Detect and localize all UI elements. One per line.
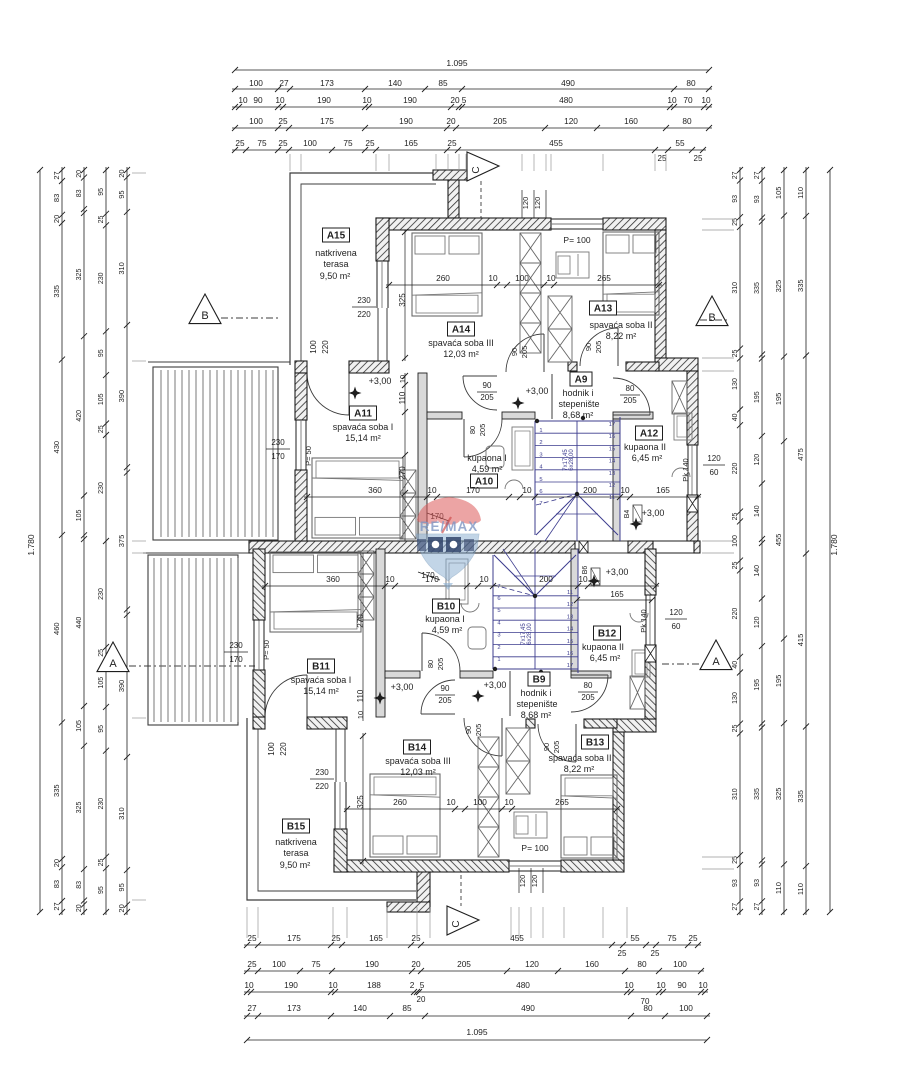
svg-text:25: 25 [365,138,375,148]
svg-text:188: 188 [367,980,381,990]
svg-text:10: 10 [328,980,338,990]
svg-text:83: 83 [76,189,83,197]
svg-text:25: 25 [447,138,457,148]
svg-text:80: 80 [637,959,647,969]
svg-text:8,68 m²: 8,68 m² [521,710,552,720]
svg-text:175: 175 [320,116,334,126]
svg-text:20: 20 [117,904,126,912]
svg-text:335: 335 [52,784,61,797]
svg-text:terasa: terasa [283,848,308,858]
svg-text:P= 100: P= 100 [521,843,548,853]
svg-text:455: 455 [510,933,524,943]
svg-text:100: 100 [679,1003,693,1013]
svg-text:P= 50: P= 50 [262,640,271,660]
svg-text:1.095: 1.095 [466,1027,488,1037]
svg-text:10: 10 [446,797,456,807]
svg-text:90: 90 [441,684,450,693]
svg-text:8,22 m²: 8,22 m² [606,331,637,341]
svg-text:10: 10 [698,980,708,990]
svg-text:420: 420 [76,410,83,422]
svg-text:130: 130 [732,378,739,390]
svg-text:190: 190 [399,116,413,126]
svg-text:173: 173 [287,1003,301,1013]
svg-text:+3,00: +3,00 [526,386,549,396]
svg-text:12: 12 [567,602,573,608]
svg-text:3: 3 [539,452,542,458]
svg-text:25: 25 [98,425,105,433]
svg-text:C: C [471,166,482,173]
svg-text:205: 205 [594,341,603,354]
svg-text:130: 130 [732,692,739,704]
svg-text:105: 105 [774,187,783,200]
svg-text:8,22 m²: 8,22 m² [564,764,595,774]
svg-text:190: 190 [403,95,417,105]
svg-text:205: 205 [493,116,507,126]
svg-text:100: 100 [249,116,263,126]
svg-text:205: 205 [474,724,483,737]
svg-text:6,45 m²: 6,45 m² [632,453,663,463]
svg-text:200: 200 [539,574,553,584]
svg-text:10: 10 [275,95,285,105]
svg-text:20: 20 [417,995,426,1004]
svg-text:27: 27 [732,903,739,911]
svg-text:6: 6 [539,489,542,495]
svg-text:165: 165 [656,485,670,495]
svg-text:90: 90 [510,348,519,356]
svg-text:220: 220 [732,608,739,620]
svg-text:5: 5 [420,980,425,990]
svg-text:83: 83 [76,881,83,889]
svg-text:170: 170 [229,655,243,664]
svg-text:83: 83 [52,194,61,202]
svg-text:100: 100 [249,78,263,88]
svg-text:25: 25 [618,949,627,958]
svg-text:173: 173 [320,78,334,88]
svg-text:6,45 m²: 6,45 m² [590,653,621,663]
svg-text:10: 10 [701,95,711,105]
svg-text:85: 85 [438,78,448,88]
svg-text:75: 75 [667,933,677,943]
svg-text:80: 80 [426,660,435,668]
svg-text:10: 10 [238,95,248,105]
svg-text:40: 40 [732,661,739,669]
svg-text:terasa: terasa [323,259,348,269]
svg-text:hodnik i: hodnik i [520,688,551,698]
svg-text:2: 2 [497,645,500,651]
svg-text:100: 100 [303,138,317,148]
svg-text:25: 25 [732,725,739,733]
svg-text:310: 310 [117,807,126,820]
svg-text:9,50 m²: 9,50 m² [320,271,351,281]
svg-text:230: 230 [315,768,329,777]
svg-text:120: 120 [525,959,539,969]
svg-text:120: 120 [754,454,761,466]
svg-text:190: 190 [317,95,331,105]
svg-text:13: 13 [609,471,615,477]
svg-text:220: 220 [279,742,288,756]
svg-text:220: 220 [357,310,371,319]
svg-text:17: 17 [609,422,615,428]
svg-text:10: 10 [656,980,666,990]
svg-text:490: 490 [561,78,575,88]
svg-text:55: 55 [675,138,685,148]
svg-text:75: 75 [343,138,353,148]
svg-text:+3,00: +3,00 [606,567,629,577]
svg-text:10: 10 [522,485,532,495]
svg-text:220: 220 [315,782,329,791]
svg-text:spavaća soba III: spavaća soba III [428,338,494,348]
svg-text:220: 220 [732,462,739,474]
svg-text:90: 90 [677,980,687,990]
svg-text:95: 95 [98,188,105,196]
svg-text:325: 325 [356,795,365,809]
svg-text:95: 95 [98,349,105,357]
svg-text:230: 230 [98,272,105,284]
svg-text:165: 165 [610,590,624,599]
svg-text:A14: A14 [452,325,471,336]
svg-text:93: 93 [754,195,761,203]
svg-text:10: 10 [356,711,365,719]
svg-text:440: 440 [76,617,83,629]
svg-text:5: 5 [497,608,500,614]
svg-text:25: 25 [278,116,288,126]
svg-text:A: A [109,658,117,670]
svg-text:10: 10 [427,485,437,495]
svg-text:270: 270 [398,466,407,480]
svg-text:3: 3 [497,633,500,639]
svg-text:230: 230 [357,296,371,305]
svg-text:40: 40 [732,413,739,421]
svg-text:B: B [201,310,208,322]
svg-text:93: 93 [732,879,739,887]
svg-text:195: 195 [774,675,783,688]
svg-text:kupaona I: kupaona I [467,453,507,463]
svg-text:110: 110 [774,882,783,894]
svg-text:90: 90 [483,381,492,390]
svg-text:kupaona II: kupaona II [624,442,666,452]
svg-text:16: 16 [567,651,573,657]
svg-text:335: 335 [754,282,761,294]
svg-text:A: A [712,656,720,668]
svg-text:265: 265 [597,273,611,283]
svg-text:5: 5 [539,477,542,483]
svg-text:10: 10 [244,980,254,990]
svg-text:1.780: 1.780 [829,534,839,556]
svg-text:spavaća soba III: spavaća soba III [385,756,451,766]
svg-text:105: 105 [76,509,83,521]
svg-text:7: 7 [539,501,542,507]
svg-text:20: 20 [446,116,456,126]
svg-text:kupaona II: kupaona II [582,642,624,652]
svg-text:B15: B15 [287,822,306,833]
svg-text:16: 16 [609,434,615,440]
svg-text:25: 25 [694,154,703,163]
svg-text:475: 475 [796,448,805,461]
svg-text:205: 205 [552,741,561,754]
svg-text:105: 105 [76,720,83,732]
svg-text:120: 120 [669,608,683,617]
svg-text:140: 140 [754,505,761,517]
svg-text:25: 25 [411,933,421,943]
svg-text:27: 27 [279,78,289,88]
svg-text:190: 190 [284,980,298,990]
svg-text:20: 20 [411,959,421,969]
svg-text:230: 230 [271,438,285,447]
svg-text:220: 220 [321,340,330,354]
svg-text:195: 195 [774,393,783,406]
svg-text:80: 80 [584,681,593,690]
svg-text:25: 25 [247,959,257,969]
svg-text:13: 13 [567,614,573,620]
svg-text:+3,00: +3,00 [391,682,414,692]
svg-text:4,59 m²: 4,59 m² [472,464,503,474]
svg-text:Pk 140: Pk 140 [681,458,690,481]
svg-text:325: 325 [76,802,83,814]
svg-text:20: 20 [76,904,83,912]
svg-text:75: 75 [257,138,267,148]
svg-text:natkrivena: natkrivena [275,837,317,847]
svg-text:27: 27 [52,902,61,910]
svg-text:25: 25 [732,562,739,570]
svg-text:25: 25 [658,154,667,163]
svg-text:310: 310 [732,282,739,294]
svg-text:spavaća soba I: spavaća soba I [333,422,394,432]
svg-text:C: C [451,920,462,927]
svg-text:20: 20 [76,170,83,178]
svg-text:10: 10 [546,273,556,283]
svg-text:B11: B11 [312,662,330,673]
svg-text:+3,00: +3,00 [642,508,665,518]
svg-text:325: 325 [76,269,83,281]
svg-text:230: 230 [229,641,243,650]
svg-text:P= 100: P= 100 [563,235,590,245]
svg-text:25: 25 [688,933,698,943]
svg-text:2: 2 [410,980,415,990]
svg-text:spavaća soba II: spavaća soba II [548,753,611,763]
svg-text:10: 10 [362,95,372,105]
svg-text:160: 160 [624,116,638,126]
svg-text:310: 310 [117,262,126,275]
svg-text:80: 80 [682,116,692,126]
svg-text:6x28,00: 6x28,00 [527,623,533,645]
svg-text:190: 190 [365,959,379,969]
svg-text:230: 230 [98,588,105,600]
svg-text:70: 70 [683,95,693,105]
svg-text:20: 20 [52,859,61,867]
svg-text:B12: B12 [598,629,617,640]
svg-text:15,14 m²: 15,14 m² [345,433,381,443]
svg-text:90: 90 [464,726,473,734]
svg-text:spavaća soba I: spavaća soba I [291,675,352,685]
svg-text:335: 335 [796,790,805,803]
svg-text:455: 455 [549,138,563,148]
svg-text:325: 325 [774,280,783,293]
svg-text:95: 95 [117,190,126,198]
svg-text:25: 25 [98,859,105,867]
svg-text:25: 25 [651,949,660,958]
svg-text:27: 27 [754,171,761,179]
svg-text:100: 100 [267,742,276,756]
svg-text:12,03 m²: 12,03 m² [443,349,479,359]
svg-text:B4: B4 [624,510,631,519]
svg-text:27: 27 [247,1003,257,1013]
svg-text:83: 83 [52,880,61,888]
svg-text:7: 7 [497,584,500,590]
svg-text:93: 93 [754,879,761,887]
svg-text:165: 165 [369,933,383,943]
svg-text:B: B [708,312,715,324]
svg-text:B13: B13 [586,738,605,749]
svg-text:93: 93 [732,195,739,203]
svg-text:60: 60 [672,622,681,631]
svg-text:325: 325 [398,293,407,307]
svg-text:stepenište: stepenište [516,699,557,709]
svg-text:spavaća soba II: spavaća soba II [589,320,652,330]
svg-text:205: 205 [623,396,637,405]
svg-text:335: 335 [52,285,61,298]
svg-text:260: 260 [393,797,407,807]
svg-text:360: 360 [326,574,340,584]
svg-text:455: 455 [774,534,783,547]
svg-text:15: 15 [609,446,615,452]
svg-text:375: 375 [117,535,126,548]
svg-text:105: 105 [98,677,105,689]
svg-text:hodnik i: hodnik i [562,388,593,398]
svg-text:12,03 m²: 12,03 m² [400,767,436,777]
svg-text:75: 75 [311,959,321,969]
svg-text:10: 10 [578,574,588,584]
svg-text:Pk 140: Pk 140 [639,609,648,632]
svg-text:8,68 m²: 8,68 m² [563,410,594,420]
svg-text:B6: B6 [582,566,589,575]
svg-text:A13: A13 [594,304,613,315]
svg-text:25: 25 [247,933,257,943]
svg-text:B9: B9 [533,675,546,686]
svg-text:5: 5 [462,95,467,105]
svg-text:10: 10 [504,797,514,807]
svg-text:17: 17 [567,663,573,669]
svg-text:480: 480 [559,95,573,105]
svg-text:A12: A12 [640,429,659,440]
svg-text:4,59 m²: 4,59 m² [432,625,463,635]
svg-text:10: 10 [385,574,395,584]
svg-text:25: 25 [98,216,105,224]
svg-text:310: 310 [732,788,739,800]
svg-text:260: 260 [436,273,450,283]
svg-text:14: 14 [567,627,574,633]
svg-text:335: 335 [754,788,761,800]
svg-text:100: 100 [309,340,318,354]
svg-text:1: 1 [539,428,542,434]
svg-text:80: 80 [468,426,477,434]
svg-text:1: 1 [497,657,500,663]
svg-text:6x28,00: 6x28,00 [569,449,575,471]
svg-text:55: 55 [630,933,640,943]
svg-text:230: 230 [98,482,105,494]
svg-text:60: 60 [710,468,719,477]
svg-text:165: 165 [404,138,418,148]
svg-text:20: 20 [450,95,460,105]
svg-text:140: 140 [754,565,761,577]
svg-text:90: 90 [584,343,593,351]
svg-text:120: 120 [707,454,721,463]
svg-text:stepenište: stepenište [558,399,599,409]
svg-text:11: 11 [567,590,573,596]
svg-text:195: 195 [754,679,761,691]
svg-text:kupaona I: kupaona I [425,614,465,624]
svg-text:205: 205 [478,424,487,437]
svg-text:105: 105 [98,393,105,405]
svg-text:25: 25 [98,649,105,657]
svg-text:natkrivena: natkrivena [315,248,357,258]
svg-text:10: 10 [488,273,498,283]
svg-text:80: 80 [686,78,696,88]
svg-text:12: 12 [609,483,615,489]
svg-text:120: 120 [564,116,578,126]
svg-text:110: 110 [796,187,805,199]
svg-text:A15: A15 [327,231,346,242]
svg-text:25: 25 [235,138,245,148]
svg-text:80: 80 [626,384,635,393]
svg-text:195: 195 [754,391,761,403]
svg-text:335: 335 [796,279,805,292]
svg-text:80: 80 [643,1003,653,1013]
svg-text:10: 10 [479,574,489,584]
svg-text:205: 205 [436,658,445,671]
svg-text:390: 390 [117,680,126,693]
svg-text:14: 14 [609,459,616,465]
svg-text:B14: B14 [408,743,427,754]
svg-text:415: 415 [796,634,805,647]
svg-text:100: 100 [673,959,687,969]
svg-text:360: 360 [368,485,382,495]
svg-text:175: 175 [287,933,301,943]
svg-text:480: 480 [516,980,530,990]
svg-text:100: 100 [473,797,487,807]
svg-text:1.095: 1.095 [446,58,468,68]
svg-text:100: 100 [515,273,529,283]
svg-text:110: 110 [356,689,365,702]
svg-text:95: 95 [98,725,105,733]
svg-text:1.780: 1.780 [26,534,36,556]
svg-text:490: 490 [521,1003,535,1013]
svg-text:B10: B10 [437,602,456,613]
svg-text:170: 170 [271,452,285,461]
svg-text:27: 27 [732,171,739,179]
svg-text:P= 50: P= 50 [304,446,313,466]
svg-text:205: 205 [457,959,471,969]
svg-text:110: 110 [398,391,407,404]
svg-text:95: 95 [98,886,105,894]
svg-text:+3,00: +3,00 [484,680,507,690]
svg-text:170: 170 [466,485,480,495]
svg-text:+3,00: +3,00 [369,376,392,386]
svg-text:11: 11 [609,495,615,501]
svg-text:140: 140 [388,78,402,88]
svg-text:460: 460 [52,622,61,635]
svg-text:25: 25 [732,513,739,521]
svg-text:160: 160 [585,959,599,969]
svg-text:205: 205 [581,693,595,702]
svg-text:205: 205 [438,696,452,705]
svg-text:205: 205 [520,346,529,359]
svg-text:230: 230 [98,798,105,810]
svg-text:110: 110 [796,883,805,895]
svg-text:120: 120 [754,616,761,628]
svg-text:2: 2 [539,440,542,446]
svg-text:90: 90 [253,95,263,105]
svg-text:20: 20 [117,169,126,177]
